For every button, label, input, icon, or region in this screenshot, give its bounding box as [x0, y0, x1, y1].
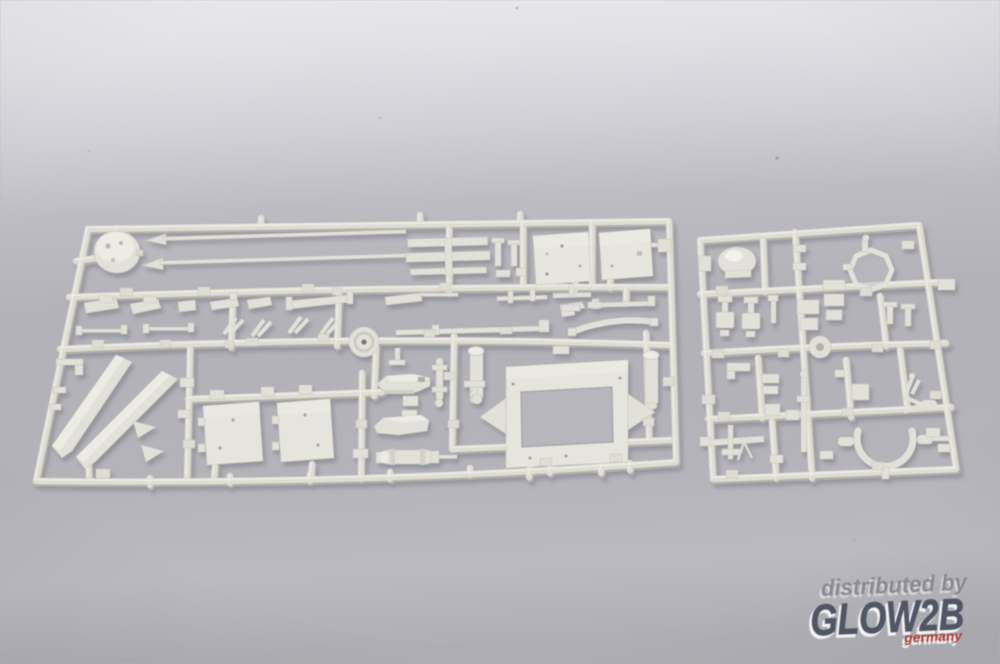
svg-text:germany: germany: [903, 628, 963, 646]
